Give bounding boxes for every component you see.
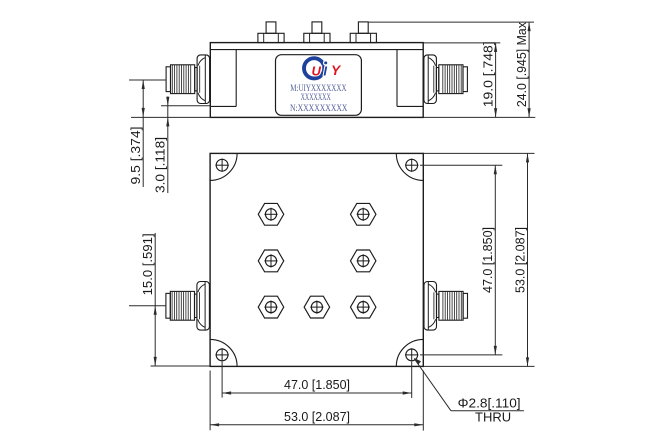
svg-text:53.0 [2.087]: 53.0 [2.087] (284, 409, 350, 424)
svg-text:U: U (312, 63, 322, 78)
svg-text:THRU: THRU (475, 410, 511, 425)
svg-text:XXXXXXX: XXXXXXX (301, 93, 331, 103)
svg-text:24.0 [.945] Max: 24.0 [.945] Max (514, 22, 529, 107)
svg-text:I: I (323, 63, 327, 78)
svg-text:47.0 [1.850]: 47.0 [1.850] (480, 227, 495, 293)
svg-text:3.0 [.118]: 3.0 [.118] (153, 137, 168, 193)
svg-text:Φ2.8[.110]: Φ2.8[.110] (458, 395, 521, 410)
svg-text:53.0 [2.087]: 53.0 [2.087] (512, 227, 527, 293)
svg-text:19.0 [.748]: 19.0 [.748] (480, 41, 495, 107)
svg-text:N:XXXXXXXXX: N:XXXXXXXXX (290, 104, 348, 114)
svg-text:9.5 [.374]: 9.5 [.374] (128, 127, 143, 185)
svg-text:47.0 [1.850]: 47.0 [1.850] (284, 377, 350, 392)
svg-text:15.0 [.591]: 15.0 [.591] (140, 233, 155, 295)
